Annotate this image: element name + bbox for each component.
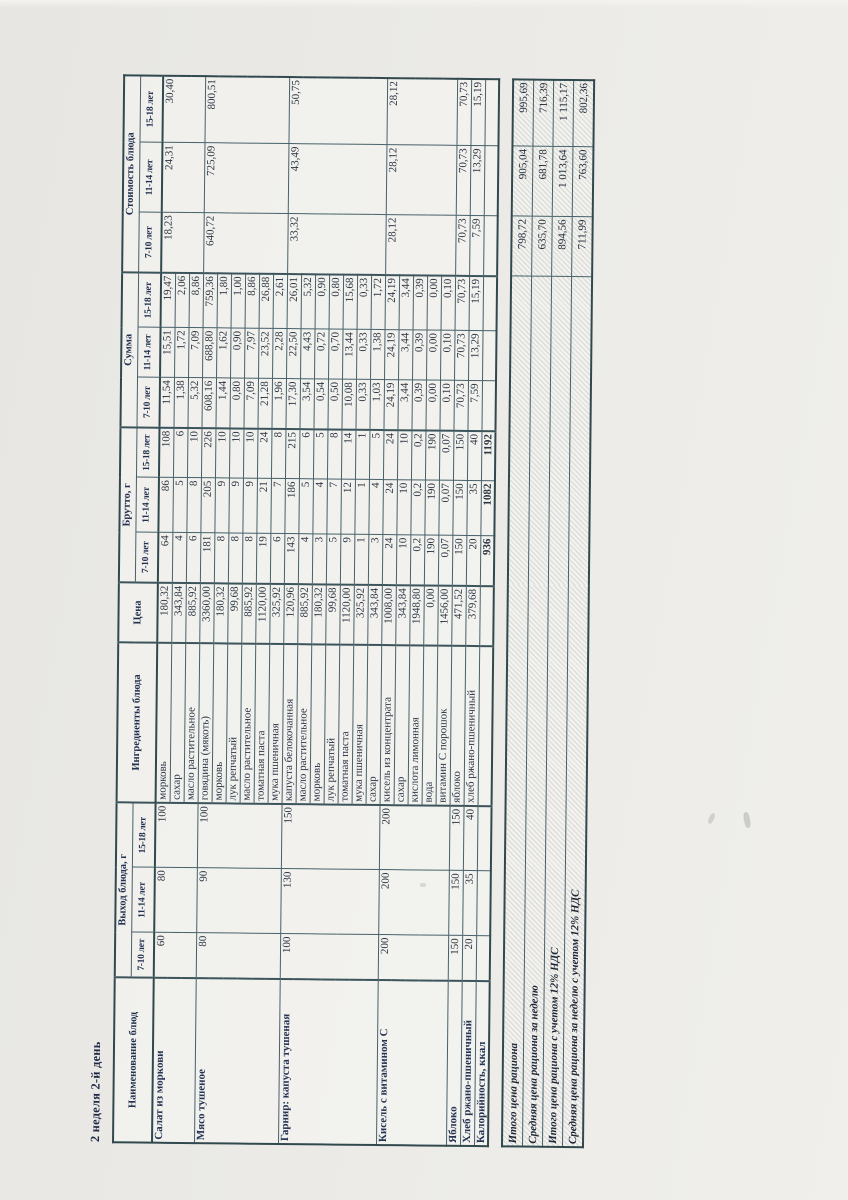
gross-value: 35	[466, 481, 481, 536]
sum-value: 2,61	[273, 274, 288, 329]
sum-value: 0,90	[230, 328, 245, 378]
ingredient-name: морковь	[156, 643, 172, 803]
sum-value: 11,54	[159, 378, 174, 428]
sum-value: 23,52	[258, 329, 273, 379]
header-age-col: 11-14 лет	[139, 142, 163, 212]
sum-value: 1,96	[271, 379, 286, 429]
ingredient-price: 471,52	[451, 586, 466, 646]
ingredient-price: 885,92	[241, 584, 256, 644]
gross-value: 24	[257, 429, 272, 479]
ingredient-price: 180,32	[311, 584, 326, 644]
sum-value: 0,54	[313, 379, 328, 429]
gross-value: 0,2	[411, 430, 426, 480]
sum-value: 24,19	[385, 275, 400, 330]
sum-value: 3,44	[399, 275, 414, 330]
summary-value: 763,60	[572, 147, 593, 217]
sum-value: 1,62	[216, 328, 231, 378]
summary-value: 1 013,64	[552, 147, 573, 217]
sum-value: 1,03	[369, 380, 384, 430]
sum-value: 3,44	[398, 330, 413, 380]
empty-cell	[483, 216, 498, 276]
gross-value: 4	[172, 533, 187, 583]
gross-value: 150	[452, 536, 467, 586]
dish-yield-value: 40	[463, 806, 478, 871]
dish-cost-value: 28,12	[386, 78, 457, 146]
ingredient-price: 180,32	[157, 583, 172, 643]
summary-value: 1 115,17	[553, 80, 574, 147]
gross-value: 10	[396, 535, 411, 585]
sum-value: 15,19	[469, 276, 484, 331]
summary-value: 681,78	[532, 147, 553, 217]
dish-yield-value: 150	[448, 936, 462, 981]
gross-value: 9	[228, 478, 243, 533]
gross-value: 6	[173, 428, 188, 478]
header-gross-group: Брутто, г	[119, 427, 137, 582]
sum-value: 0,10	[439, 381, 454, 431]
empty-cell	[478, 646, 494, 806]
header-age-col: 7-10 лет	[135, 532, 159, 582]
gross-value: 9	[340, 535, 355, 585]
gross-value: 190	[425, 430, 440, 480]
gross-value: 6	[299, 429, 314, 479]
ingredient-price: 885,92	[185, 583, 200, 643]
header-age-col: 15-18 лет	[138, 272, 162, 327]
sum-value: 15,51	[160, 328, 175, 378]
dish-cost-value: 15,19	[470, 79, 485, 146]
empty-cell	[484, 146, 499, 216]
gross-value: 190	[424, 480, 439, 535]
dish-yield-value: 100	[197, 803, 282, 869]
empty-cell	[483, 276, 498, 331]
sum-value: 3,44	[397, 380, 412, 430]
gross-value: 4	[312, 479, 327, 534]
sum-value: 0,33	[357, 275, 372, 330]
sum-value: 7,59	[467, 381, 482, 431]
dish-yield-value: 200	[379, 805, 450, 871]
sum-value: 8,86	[245, 274, 260, 329]
dish-yield-value: 200	[378, 935, 448, 981]
dish-cost-value: 28,12	[386, 145, 457, 216]
sum-value: 5,32	[187, 378, 202, 428]
sum-value: 1,80	[217, 273, 232, 328]
gross-value: 0,07	[438, 536, 453, 586]
dish-cost-value: 70,73	[455, 216, 470, 276]
gross-value: 5	[369, 430, 384, 480]
header-sum-group: Сумма	[120, 272, 138, 427]
dish-cost-value: 28,12	[385, 215, 456, 276]
dish-yield-value: 80	[154, 868, 197, 933]
ingredient-price: 1120,00	[255, 584, 270, 644]
dish-cost-value: 7,59	[469, 216, 484, 276]
dish-yield-value: 90	[196, 868, 281, 934]
empty-cell	[476, 936, 490, 981]
sum-value: 1,72	[371, 275, 386, 330]
sum-value: 26,88	[259, 274, 274, 329]
dish-cost-value: 640,72	[203, 213, 288, 274]
sum-value: 21,28	[257, 379, 272, 429]
gross-value: 8	[242, 534, 257, 584]
sum-value: 688,80	[202, 328, 217, 378]
gross-value: 181	[200, 533, 215, 583]
dish-cost-value: 800,51	[204, 76, 289, 144]
dish-yield-value: 150	[281, 804, 380, 870]
ingredient-price: 343,84	[367, 585, 382, 645]
header-age-col: 7-10 лет	[138, 212, 162, 272]
gross-value: 4	[368, 480, 383, 535]
gross-value: 19	[256, 534, 271, 584]
gross-value: 8	[214, 533, 229, 583]
sum-value: 0,33	[356, 330, 371, 380]
gross-value: 0,07	[439, 431, 454, 481]
dish-cost-value: 43,49	[288, 144, 387, 215]
sum-value: 15,68	[343, 275, 358, 330]
ingredient-price: 180,32	[213, 583, 228, 643]
gross-value: 8	[271, 429, 286, 479]
dish-name: Гарнир: капуста тушеная	[278, 979, 378, 1145]
sum-value: 8,86	[189, 273, 204, 328]
ingredient-price: 343,84	[171, 583, 186, 643]
dish-cost-value: 30,40	[162, 76, 205, 143]
sum-value: 1,00	[231, 273, 246, 328]
scanned-page: 2 неделя 2-й день Наименование блюд Выхо…	[0, 0, 848, 1200]
gross-value: 5	[172, 478, 187, 533]
gross-value: 215	[285, 429, 300, 479]
gross-value: 0,2	[410, 535, 425, 585]
header-age-col: 15-18 лет	[139, 75, 163, 142]
empty-cell	[476, 871, 491, 936]
gross-value: 143	[284, 534, 299, 584]
summary-value: 905,04	[512, 146, 533, 216]
sum-value: 3,54	[299, 379, 314, 429]
sum-value: 7,09	[188, 328, 203, 378]
gross-value: 150	[453, 431, 468, 481]
sum-value: 0,72	[314, 329, 329, 379]
summary-value: 995,69	[512, 79, 533, 146]
dish-yield-value: 130	[280, 869, 379, 935]
summary-value: 711,99	[572, 217, 593, 277]
gross-value: 186	[284, 479, 299, 534]
paper-speck	[420, 883, 426, 887]
sum-value: 0,00	[427, 275, 442, 330]
header-price: Цена	[118, 582, 158, 642]
gross-value: 10	[229, 428, 244, 478]
gross-value: 5	[313, 429, 328, 479]
paper-speck	[743, 812, 752, 829]
calories-value: 936	[480, 536, 495, 586]
gross-value: 24	[382, 535, 397, 585]
gross-value: 8	[327, 429, 342, 479]
ingredient-price: 325,92	[353, 585, 368, 645]
dish-cost-value: 18,23	[161, 213, 204, 273]
ingredient-price: 1008,00	[381, 585, 396, 645]
sum-value: 1,38	[370, 330, 385, 380]
summary-value: 798,72	[511, 216, 532, 276]
header-ingredients: Ингредиенты блюда	[117, 642, 158, 802]
summary-value: 716,39	[533, 80, 554, 147]
gross-value: 3	[312, 534, 327, 584]
ingredient-price: 325,92	[269, 584, 284, 644]
sum-value: 24,19	[384, 330, 399, 380]
calories-value: 1192	[481, 431, 496, 481]
page-title: 2 неделя 2-й день	[88, 76, 114, 1142]
gross-value: 9	[214, 478, 229, 533]
ingredient-price: 343,84	[395, 585, 410, 645]
sum-value: 7,09	[243, 379, 258, 429]
sum-value: 0,00	[425, 380, 440, 430]
dish-yield-value: 20	[462, 936, 476, 981]
sum-value: 1,44	[215, 378, 230, 428]
sum-value: 22,50	[286, 329, 301, 379]
hatched-spacer	[568, 277, 592, 585]
dish-cost-value: 13,29	[470, 146, 485, 216]
gross-value: 5	[298, 479, 313, 534]
sum-value: 24,19	[383, 380, 398, 430]
header-age-col: 11-14 лет	[137, 327, 161, 377]
gross-value: 86	[158, 478, 173, 533]
sum-value: 0,33	[355, 380, 370, 430]
ingredient-price: 1120,00	[339, 585, 354, 645]
ingredient-price: 3360,00	[199, 583, 214, 643]
sum-value: 0,39	[412, 330, 427, 380]
gross-value: 40	[467, 431, 482, 481]
sum-value: 19,47	[161, 273, 176, 328]
rotated-sheet: 2 неделя 2-й день Наименование блюд Выхо…	[88, 76, 595, 1148]
sum-value: 70,73	[453, 381, 468, 431]
sum-value: 0,39	[413, 275, 428, 330]
gross-value: 150	[452, 481, 467, 536]
dish-cost-value: 725,09	[204, 143, 289, 214]
gross-value: 8	[186, 478, 201, 533]
gross-value: 6	[270, 534, 285, 584]
ingredient-price: 120,96	[283, 584, 298, 644]
sum-value: 0,80	[329, 274, 344, 329]
dish-yield-value: 60	[154, 933, 196, 978]
gross-value: 10	[396, 480, 411, 535]
header-age-col: 15-18 лет	[132, 802, 156, 867]
dish-cost-value: 70,73	[456, 79, 471, 146]
ingredient-price: 99,68	[325, 584, 340, 644]
ingredient-price: 1456,00	[437, 586, 452, 646]
sum-value: 608,16	[201, 378, 216, 428]
ingredient-price: 99,68	[227, 583, 242, 643]
sum-value: 4,43	[300, 329, 315, 379]
gross-value: 24	[382, 480, 397, 535]
sum-value: 0,39	[411, 380, 426, 430]
gross-value: 5	[326, 534, 341, 584]
dish-yield-value: 100	[280, 934, 378, 980]
sum-value: 7,97	[244, 329, 259, 379]
ingredient-price: 379,68	[465, 586, 480, 646]
gross-value: 10	[243, 429, 258, 479]
ingredient-price: 0,00	[423, 585, 438, 645]
summary-value: 635,70	[532, 217, 553, 277]
dish-yield-value: 100	[155, 803, 198, 868]
ingredient-price: 885,92	[297, 584, 312, 644]
sum-value: 0,90	[315, 274, 330, 329]
gross-value: 4	[298, 534, 313, 584]
gross-value: 10	[187, 428, 202, 478]
header-yield-group: Выход блюда, г	[115, 802, 133, 977]
dish-yield-value: 150	[449, 806, 464, 871]
summary-value: 894,56	[552, 217, 573, 277]
sum-value: 759,36	[203, 273, 218, 328]
dish-yield-value: 150	[448, 871, 463, 936]
dish-name: Кисель с витамином С	[376, 980, 448, 1146]
sum-value: 5,32	[301, 274, 316, 329]
dish-yield-value: 200	[378, 870, 449, 936]
gross-value: 1	[354, 535, 369, 585]
dish-yield-value: 80	[196, 933, 280, 979]
summary-body: Итого цена рациона798,72905,04995,69Сред…	[502, 79, 594, 1147]
ingredient-price: 1948,80	[409, 585, 424, 645]
menu-table: Наименование блюд Выход блюда, г Ингреди…	[112, 74, 500, 1147]
table-body: Салат из моркови6080100морковь180,326486…	[152, 76, 499, 1147]
gross-value: 64	[158, 533, 173, 583]
empty-cell	[479, 586, 494, 646]
dish-name: Салат из моркови	[152, 978, 196, 1143]
sum-value: 0,10	[440, 331, 455, 381]
dish-yield-value: 35	[462, 871, 477, 936]
sum-value: 70,73	[454, 331, 469, 381]
gross-value: 0,2	[410, 480, 425, 535]
empty-cell	[477, 806, 492, 871]
gross-value: 8	[228, 533, 243, 583]
gross-value: 205	[200, 478, 215, 533]
gross-value: 7	[270, 479, 285, 534]
gross-value: 14	[341, 430, 356, 480]
sum-value: 70,73	[455, 276, 470, 331]
calories-value: 1082	[480, 481, 495, 536]
paper-speck	[707, 812, 716, 824]
gross-value: 24	[383, 430, 398, 480]
gross-value: 3	[368, 535, 383, 585]
gross-value: 10	[397, 430, 412, 480]
sum-value: 26,01	[287, 274, 302, 329]
header-dish: Наименование блюд	[113, 977, 154, 1142]
gross-value: 9	[242, 479, 257, 534]
empty-cell	[484, 79, 499, 146]
gross-value: 12	[340, 480, 355, 535]
sum-value: 13,44	[342, 330, 357, 380]
gross-value: 226	[201, 428, 216, 478]
header-age-col: 7-10 лет	[136, 377, 160, 427]
calories-label: Калорийность, ккал	[474, 981, 490, 1146]
sum-value: 17,30	[285, 379, 300, 429]
gross-value: 1	[355, 430, 370, 480]
dish-cost-value: 50,75	[288, 77, 387, 145]
summary-value: 802,36	[573, 80, 594, 147]
dish-name: Мясо тушеное	[194, 978, 280, 1144]
sum-value: 0,70	[328, 329, 343, 379]
dish-cost-value: 70,73	[456, 146, 471, 216]
gross-value: 21	[256, 479, 271, 534]
header-age-col: 11-14 лет	[135, 477, 159, 532]
header-age-col: 15-18 лет	[136, 427, 160, 477]
gross-value: 10	[215, 428, 230, 478]
summary-table: Итого цена рациона798,72905,04995,69Сред…	[501, 78, 595, 1148]
empty-cell	[482, 331, 497, 381]
sum-value: 13,29	[468, 331, 483, 381]
sum-value: 1,38	[173, 378, 188, 428]
sum-value: 0,10	[441, 276, 456, 331]
sum-value: 0,80	[229, 378, 244, 428]
gross-value: 1	[354, 480, 369, 535]
empty-cell	[481, 381, 496, 431]
gross-value: 7	[326, 479, 341, 534]
gross-value: 190	[424, 535, 439, 585]
sum-value: 2,28	[272, 329, 287, 379]
dish-cost-value: 33,32	[287, 214, 386, 275]
gross-value: 0,07	[438, 481, 453, 536]
gross-value: 6	[186, 533, 201, 583]
sum-value: 0,50	[327, 379, 342, 429]
sum-value: 10,08	[341, 380, 356, 430]
gross-value: 108	[159, 428, 174, 478]
dish-cost-value: 24,31	[162, 143, 205, 213]
gross-value: 20	[466, 536, 481, 586]
sum-value: 2,06	[175, 273, 190, 328]
sum-value: 1,72	[174, 328, 189, 378]
header-age-col: 11-14 лет	[131, 867, 155, 932]
header-age-col: 7-10 лет	[131, 932, 154, 977]
sum-value: 0,00	[426, 330, 441, 380]
